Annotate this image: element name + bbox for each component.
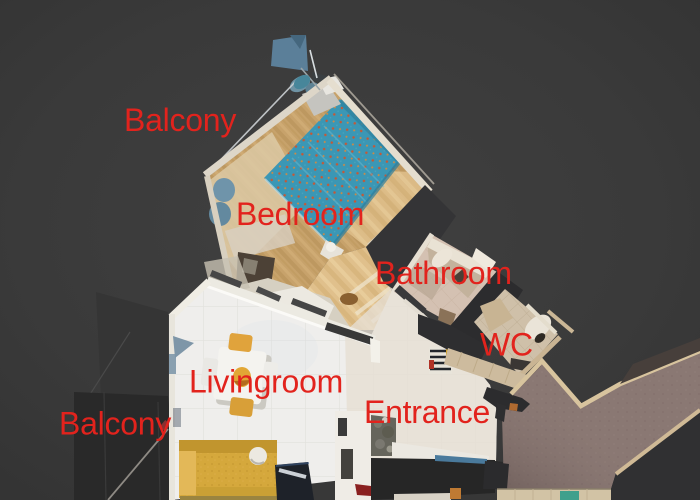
svg-text:WC: WC [480, 327, 533, 363]
svg-text:Balcony: Balcony [59, 406, 171, 442]
svg-text:Bathroom: Bathroom [375, 255, 512, 291]
svg-text:Bedroom: Bedroom [236, 196, 364, 232]
svg-text:Entrance: Entrance [364, 394, 490, 430]
svg-text:Livingroom: Livingroom [189, 364, 343, 400]
svg-text:Balcony: Balcony [124, 102, 236, 138]
